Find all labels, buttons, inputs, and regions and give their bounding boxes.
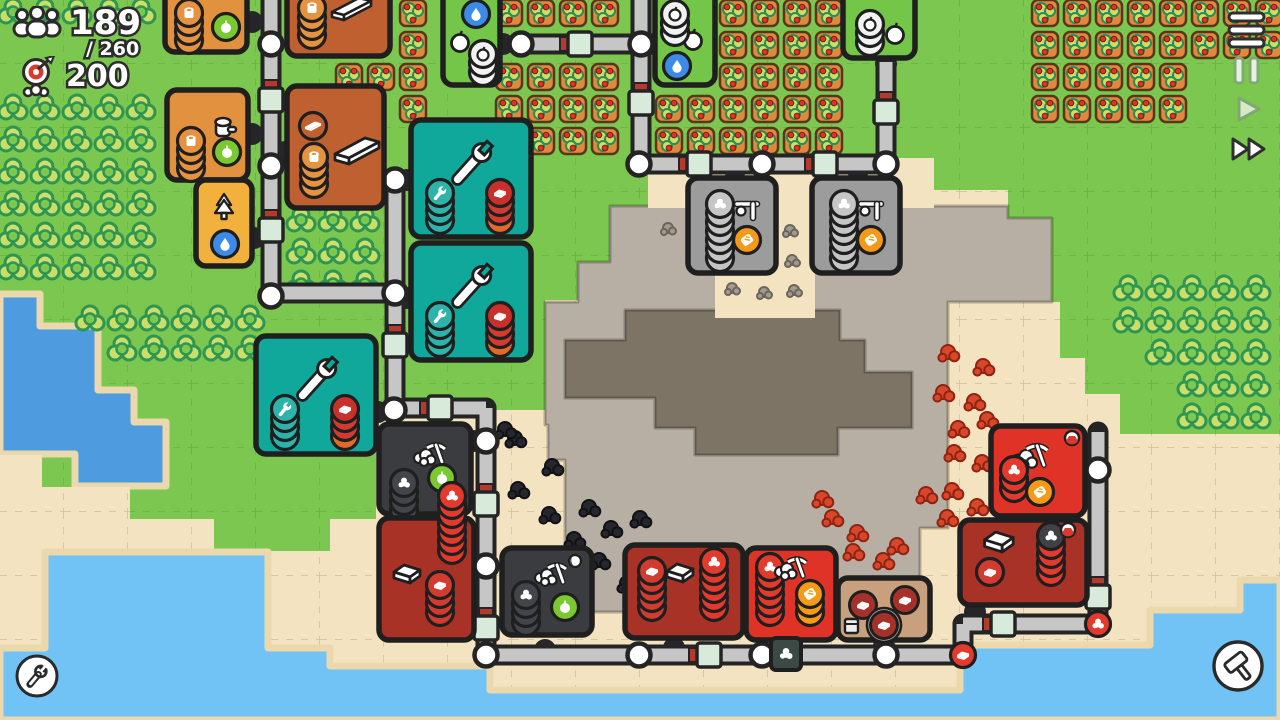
berry-bush-tile (592, 64, 618, 90)
belt-node[interactable] (383, 399, 406, 422)
apple-stack (662, 1, 689, 46)
tree-planter[interactable] (196, 180, 252, 266)
berry-bush-tile (1096, 96, 1122, 122)
orchard-2[interactable] (655, 0, 715, 85)
apple-stack (470, 41, 497, 86)
berry-bush-tile (720, 32, 746, 58)
ingot-stack (487, 180, 514, 234)
berry-bush-tile (752, 32, 778, 58)
belt-node[interactable] (260, 155, 283, 178)
berry-bush-tile (528, 64, 554, 90)
berry-bush-tile (1032, 32, 1058, 58)
berry-bush-tile (752, 128, 778, 154)
belt-connector[interactable] (474, 492, 498, 516)
belt-node[interactable] (260, 33, 283, 56)
log-stack (176, 0, 203, 54)
stone-stack (707, 191, 734, 272)
iron-mine-2[interactable] (991, 426, 1085, 516)
belt-connector[interactable] (629, 91, 653, 115)
berry-bush-tile (1128, 32, 1154, 58)
iron-mine-1[interactable] (746, 548, 836, 640)
play-button[interactable] (1235, 96, 1263, 128)
berry-bush-tile (752, 64, 778, 90)
berry-bush-tile (1064, 64, 1090, 90)
berry-bush-tile (1064, 32, 1090, 58)
berry-bush-tile (1192, 0, 1218, 26)
berry-bush-tile (1160, 64, 1186, 90)
belt-node[interactable] (628, 644, 651, 667)
berry-bush-tile (1032, 96, 1058, 122)
berry-bush-tile (784, 64, 810, 90)
build-button[interactable] (1210, 638, 1266, 698)
menu-button[interactable] (1226, 10, 1268, 56)
belt-node[interactable] (1087, 459, 1110, 482)
ingot-stack (487, 303, 514, 357)
wrench-stack (272, 396, 299, 450)
population-current: 189 (70, 6, 141, 40)
berry-bush-tile (560, 64, 586, 90)
berry-bush-tile (560, 128, 586, 154)
population-icon (12, 6, 62, 48)
workshop-2[interactable] (411, 243, 531, 360)
belt-connector[interactable] (383, 333, 407, 357)
berry-bush-tile (720, 128, 746, 154)
furnace-3[interactable] (960, 520, 1087, 605)
berry-bush-tile (784, 96, 810, 122)
belt-node[interactable] (510, 33, 533, 56)
berry-bush-tile (720, 0, 746, 26)
orchard-3[interactable] (843, 0, 915, 58)
play-icon (1235, 96, 1263, 124)
belt-node[interactable] (384, 169, 407, 192)
pause-icon (1232, 56, 1262, 86)
berry-bush-tile (816, 64, 842, 90)
belt-node[interactable] (475, 555, 498, 578)
berry-bush-tile (1064, 0, 1090, 26)
belt-node[interactable] (260, 285, 283, 308)
berry-bush-tile (752, 0, 778, 26)
berry-bush-tile (656, 96, 682, 122)
game-map[interactable] (0, 0, 1280, 720)
berry-bush-tile (400, 64, 426, 90)
berry-bush-tile (688, 96, 714, 122)
belt-connector[interactable] (687, 152, 711, 176)
stone-stack (831, 191, 858, 272)
berry-bush-tile (1096, 32, 1122, 58)
berry-bush-tile (1192, 32, 1218, 58)
berry-bush-tile (816, 0, 842, 26)
workshop-3[interactable] (256, 336, 376, 454)
ingot-stack (427, 572, 454, 626)
berry-bush-tile (1032, 0, 1058, 26)
belt-connector[interactable] (991, 612, 1015, 636)
log-stack (178, 128, 205, 182)
berry-bush-tile (1096, 0, 1122, 26)
target-goal-icon (16, 56, 58, 98)
berry-bush-tile (656, 128, 682, 154)
resource-ball (1061, 523, 1075, 537)
coal-stack (513, 582, 540, 636)
orange-stack (797, 581, 824, 626)
apple-stack (857, 11, 884, 56)
build-hammer-icon (1210, 638, 1266, 694)
berry-bush-tile (1032, 64, 1058, 90)
berry-bush-tile (1160, 32, 1186, 58)
game-screen: 189 / 260 200 (0, 0, 1280, 720)
depot[interactable] (838, 578, 930, 642)
berry-bush-tile (1128, 64, 1154, 90)
belt-connector[interactable] (259, 88, 283, 112)
log-stack (301, 144, 328, 198)
berry-bush-tile (528, 0, 554, 26)
berry-bush-tile (1128, 0, 1154, 26)
belt-connector[interactable] (813, 152, 837, 176)
fast-forward-button[interactable] (1230, 136, 1270, 168)
belt-connector[interactable] (428, 396, 452, 420)
belt-node[interactable] (751, 153, 774, 176)
workshop-1[interactable] (411, 120, 531, 237)
berry-bush-tile (592, 0, 618, 26)
ore-stack (757, 554, 784, 626)
wrench-tool-icon (14, 653, 62, 701)
population-counter: 189 / 260 (12, 6, 141, 59)
berry-bush-tile (1160, 96, 1186, 122)
lumber-mill-2[interactable] (287, 86, 384, 208)
orchard-1[interactable] (443, 0, 500, 86)
wood-camp-1[interactable] (165, 0, 247, 54)
wood-camp-2[interactable] (167, 90, 248, 182)
berry-bush-tile (400, 32, 426, 58)
coal-mine-2[interactable] (502, 548, 592, 636)
berry-bush-tile (688, 128, 714, 154)
belt-connector[interactable] (474, 616, 498, 640)
belt-node[interactable] (475, 644, 498, 667)
apple-icon (887, 27, 904, 44)
berry-bush-tile (1160, 0, 1186, 26)
belt-node[interactable] (875, 644, 898, 667)
apple-icon (452, 35, 469, 52)
ingot-stack (332, 396, 359, 450)
berry-bush-tile (560, 96, 586, 122)
berry-bush-tile (592, 96, 618, 122)
ore-stack (439, 483, 466, 564)
berry-bush-tile (816, 128, 842, 154)
belt-node[interactable] (475, 430, 498, 453)
berry-bush-tile (400, 0, 426, 26)
belt-node[interactable] (628, 153, 651, 176)
menu-icon (1226, 10, 1268, 52)
pause-button[interactable] (1232, 56, 1262, 90)
belt-connector[interactable] (568, 32, 592, 56)
belt-connector[interactable] (259, 218, 283, 242)
berry-bush-tile (560, 0, 586, 26)
berry-bush-tile (1128, 96, 1154, 122)
belt-filter[interactable] (771, 638, 801, 670)
tools-button[interactable] (14, 653, 62, 705)
berry-bush-tile (720, 96, 746, 122)
berry-bush-tile (816, 96, 842, 122)
goal-counter: 200 (16, 56, 129, 98)
extractor-1[interactable] (688, 178, 776, 273)
lumber-mill-1[interactable] (287, 0, 390, 56)
berry-bush-tile (784, 32, 810, 58)
belt-connector[interactable] (697, 643, 721, 667)
berry-bush-tile (592, 128, 618, 154)
wrench-stack (427, 180, 454, 234)
furnace-2[interactable] (625, 545, 743, 638)
wrench-stack (427, 303, 454, 357)
ingot-icon (394, 565, 420, 583)
belt-node[interactable] (630, 33, 653, 56)
fast-forward-icon (1230, 136, 1270, 164)
log-stack (299, 0, 326, 49)
berry-bush-tile (784, 128, 810, 154)
ingot-icon (667, 564, 693, 582)
berry-bush-tile (816, 32, 842, 58)
ore-stack (1001, 457, 1028, 502)
belt-node[interactable] (875, 153, 898, 176)
box-icon (845, 619, 858, 633)
resource-ball (1065, 431, 1079, 445)
berry-bush-tile (752, 96, 778, 122)
berry-bush-tile (528, 96, 554, 122)
belt-connector[interactable] (874, 100, 898, 124)
berry-bush-tile (1096, 64, 1122, 90)
extractor-2[interactable] (812, 178, 900, 273)
berry-bush-tile (784, 0, 810, 26)
belt-node[interactable] (384, 282, 407, 305)
ore-stack (701, 549, 728, 621)
ingot-stack (639, 558, 666, 621)
berry-bush-tile (1064, 96, 1090, 122)
berry-bush-tile (720, 64, 746, 90)
goal-value: 200 (66, 60, 129, 94)
